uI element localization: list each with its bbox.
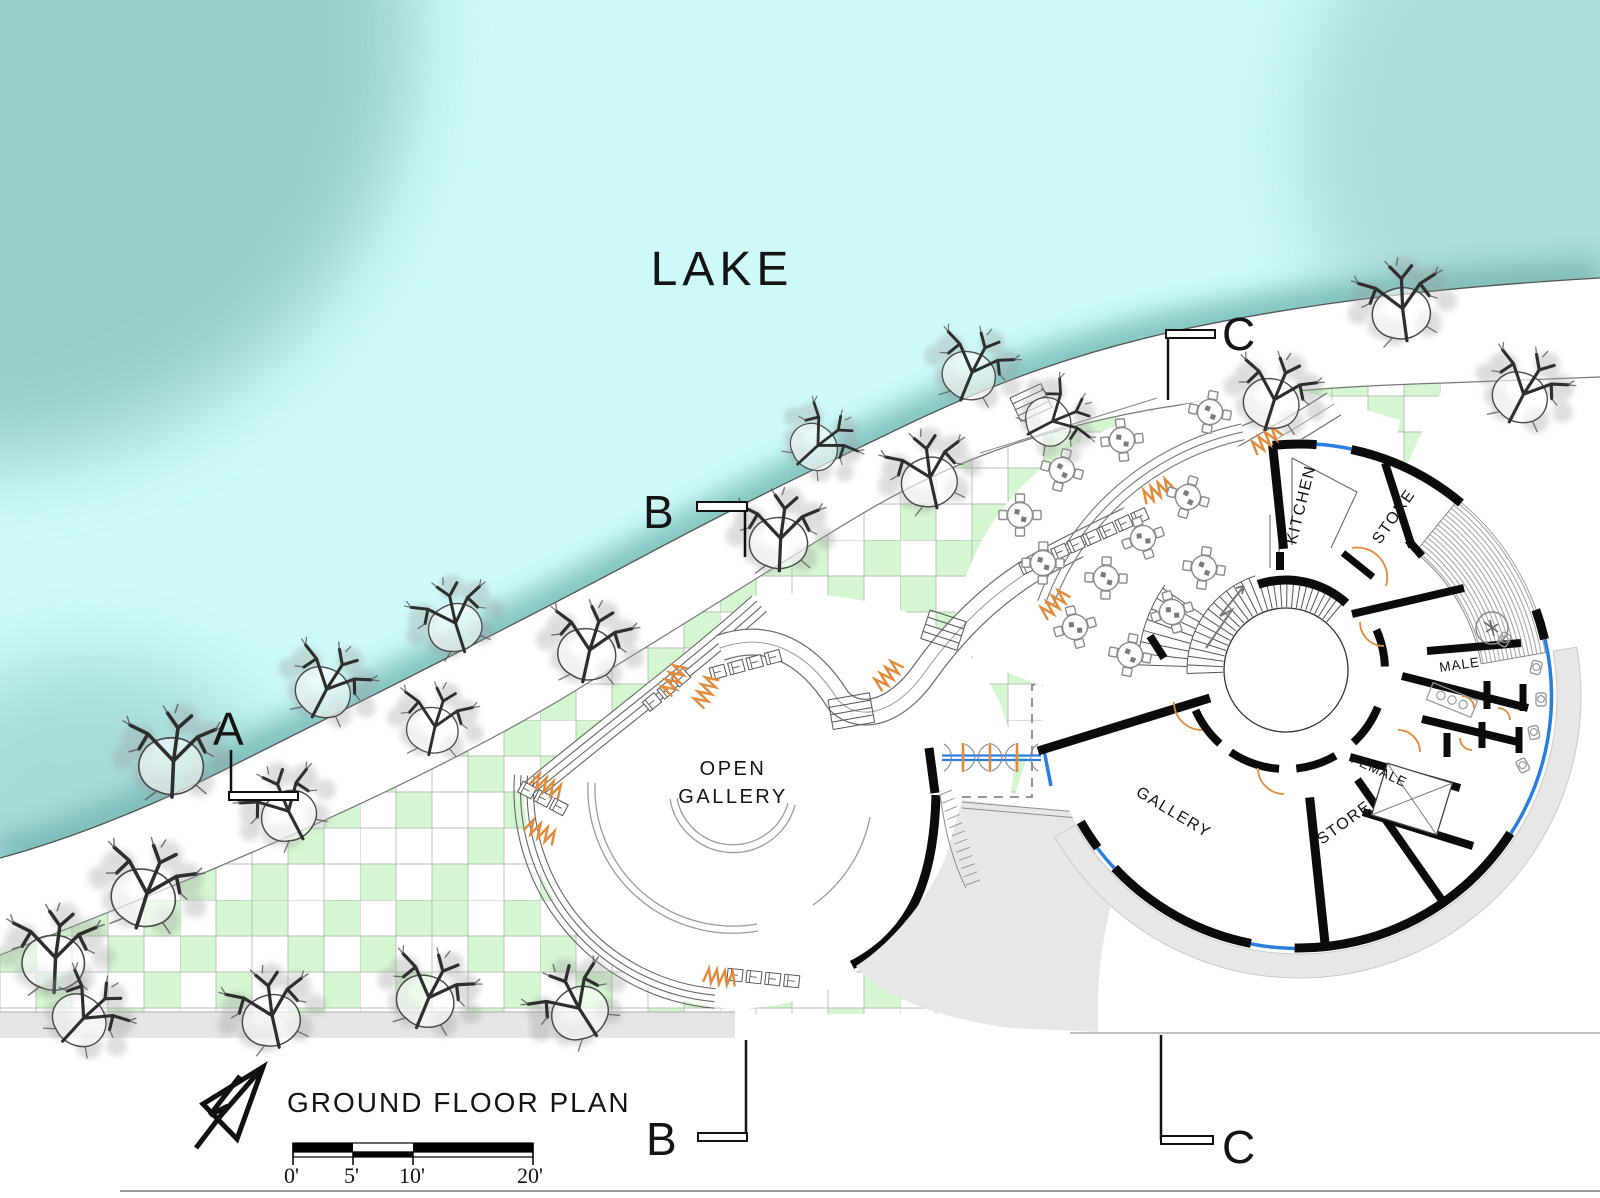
section-b-bottom-marker: B bbox=[646, 1040, 747, 1165]
scale-20: 20' bbox=[517, 1163, 543, 1188]
scale-10: 10' bbox=[399, 1163, 425, 1188]
section-c-letter: C bbox=[1222, 308, 1255, 360]
site-plan-canvas: LAKE OPEN GALLERY bbox=[0, 0, 1600, 1198]
ground-floor-plan-drawing: LAKE OPEN GALLERY bbox=[0, 0, 1600, 1198]
section-a-letter: A bbox=[213, 703, 244, 755]
section-c-bottom-marker: C bbox=[1161, 1035, 1255, 1173]
central-courtyard bbox=[1224, 608, 1348, 732]
lake-label: LAKE bbox=[651, 243, 794, 296]
section-b-letter: B bbox=[643, 486, 674, 538]
north-arrow-icon bbox=[196, 1067, 263, 1148]
open-gallery-label-1: OPEN bbox=[700, 758, 767, 780]
scale-5: 5' bbox=[344, 1163, 359, 1188]
title-block: GROUND FLOOR PLAN 0' 5' 10' 20' bbox=[120, 1067, 1600, 1191]
section-b-letter: B bbox=[646, 1113, 677, 1165]
open-gallery-label-2: GALLERY bbox=[678, 786, 787, 808]
section-c-letter: C bbox=[1222, 1121, 1255, 1173]
scale-bar: 0' 5' 10' 20' bbox=[284, 1143, 543, 1188]
plan-title: GROUND FLOOR PLAN bbox=[287, 1087, 631, 1118]
scale-0: 0' bbox=[284, 1163, 299, 1188]
